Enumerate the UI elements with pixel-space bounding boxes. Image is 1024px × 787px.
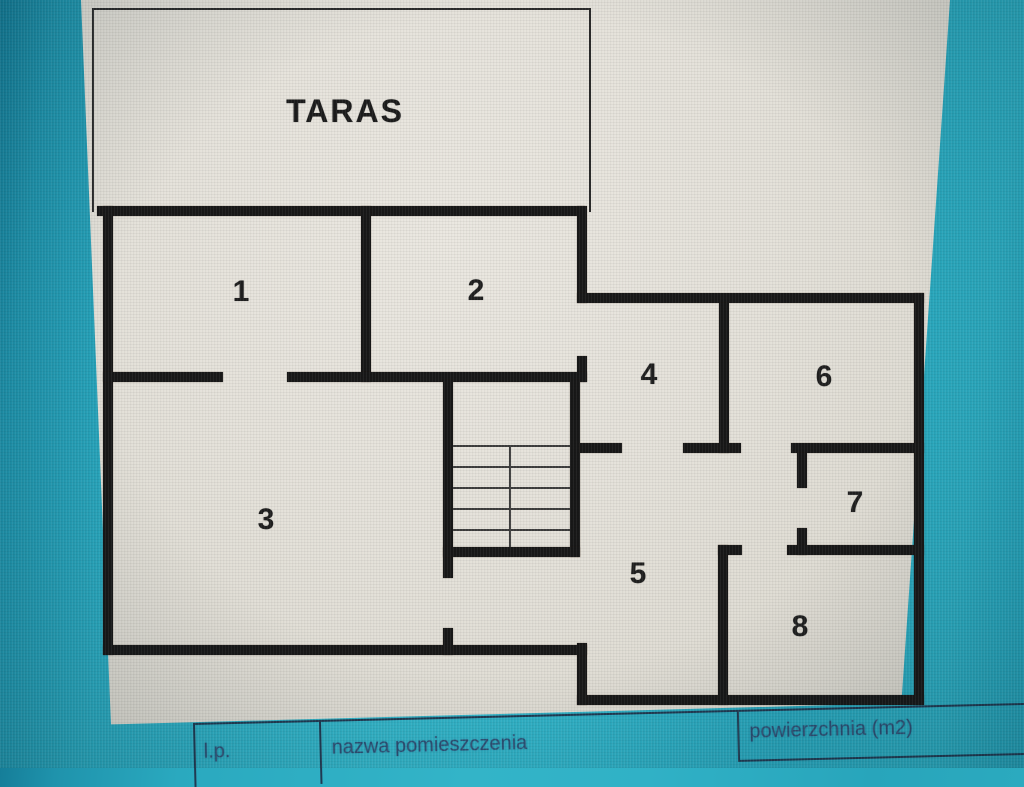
stair-tread-line bbox=[453, 445, 570, 447]
wall-stair-bottom bbox=[443, 547, 580, 557]
wall-outer-bottom-right bbox=[577, 695, 924, 705]
wall-room7-top bbox=[791, 443, 924, 453]
photo-of-screen: { "plan": { "terrace_label": "TARAS", "r… bbox=[0, 0, 1024, 768]
floor-plan: TARAS 1 2 3 4 5 6 7 8 bbox=[0, 0, 1024, 768]
wall-outer-bottom-left bbox=[103, 645, 587, 655]
stair-tread-line bbox=[453, 487, 570, 489]
room-label-7: 7 bbox=[847, 486, 864, 520]
room-label-8: 8 bbox=[792, 610, 809, 644]
wall-room1-room2-divider bbox=[361, 206, 371, 382]
stair-center-line bbox=[509, 445, 511, 547]
room-label-3: 3 bbox=[258, 503, 275, 537]
wall-stair-door-stub bbox=[580, 443, 622, 453]
wall-outer-right bbox=[914, 293, 924, 705]
room-label-2: 2 bbox=[468, 274, 485, 308]
table-divider-lp-nazwa bbox=[319, 722, 322, 784]
wall-room5-room8-stub bbox=[718, 545, 742, 555]
wall-room2-right bbox=[577, 206, 587, 303]
column-header-powierzchnia: powierzchnia (m2) bbox=[749, 717, 913, 744]
wall-room4-room6-divider bbox=[719, 303, 729, 453]
room-label-5: 5 bbox=[630, 557, 647, 591]
column-header-nazwa: nazwa pomieszczenia bbox=[331, 732, 527, 760]
room-label-4: 4 bbox=[641, 358, 658, 392]
wall-room5-room8-divider bbox=[718, 545, 728, 705]
wall-stair-right bbox=[570, 380, 580, 557]
wall-outer-left bbox=[103, 206, 113, 655]
wall-wing-top bbox=[577, 293, 924, 303]
staircase bbox=[453, 445, 570, 547]
wall-outer-top bbox=[97, 206, 585, 216]
wall-mid-right-segment bbox=[287, 372, 587, 382]
column-header-lp: l.p. bbox=[203, 740, 230, 764]
terrace-label: TARAS bbox=[250, 93, 440, 130]
wall-mid-left-segment bbox=[103, 372, 223, 382]
room-label-6: 6 bbox=[816, 360, 833, 394]
stair-tread-line bbox=[453, 529, 570, 531]
wall-stair-left-lower bbox=[443, 628, 453, 655]
room-label-1: 1 bbox=[233, 275, 250, 309]
stair-tread-line bbox=[453, 508, 570, 510]
stair-tread-line bbox=[453, 466, 570, 468]
wall-room7-left-upper bbox=[797, 453, 807, 488]
wall-room7-room8-divider bbox=[787, 545, 924, 555]
wall-room4-bottom bbox=[683, 443, 741, 453]
table-border-left bbox=[193, 725, 196, 787]
